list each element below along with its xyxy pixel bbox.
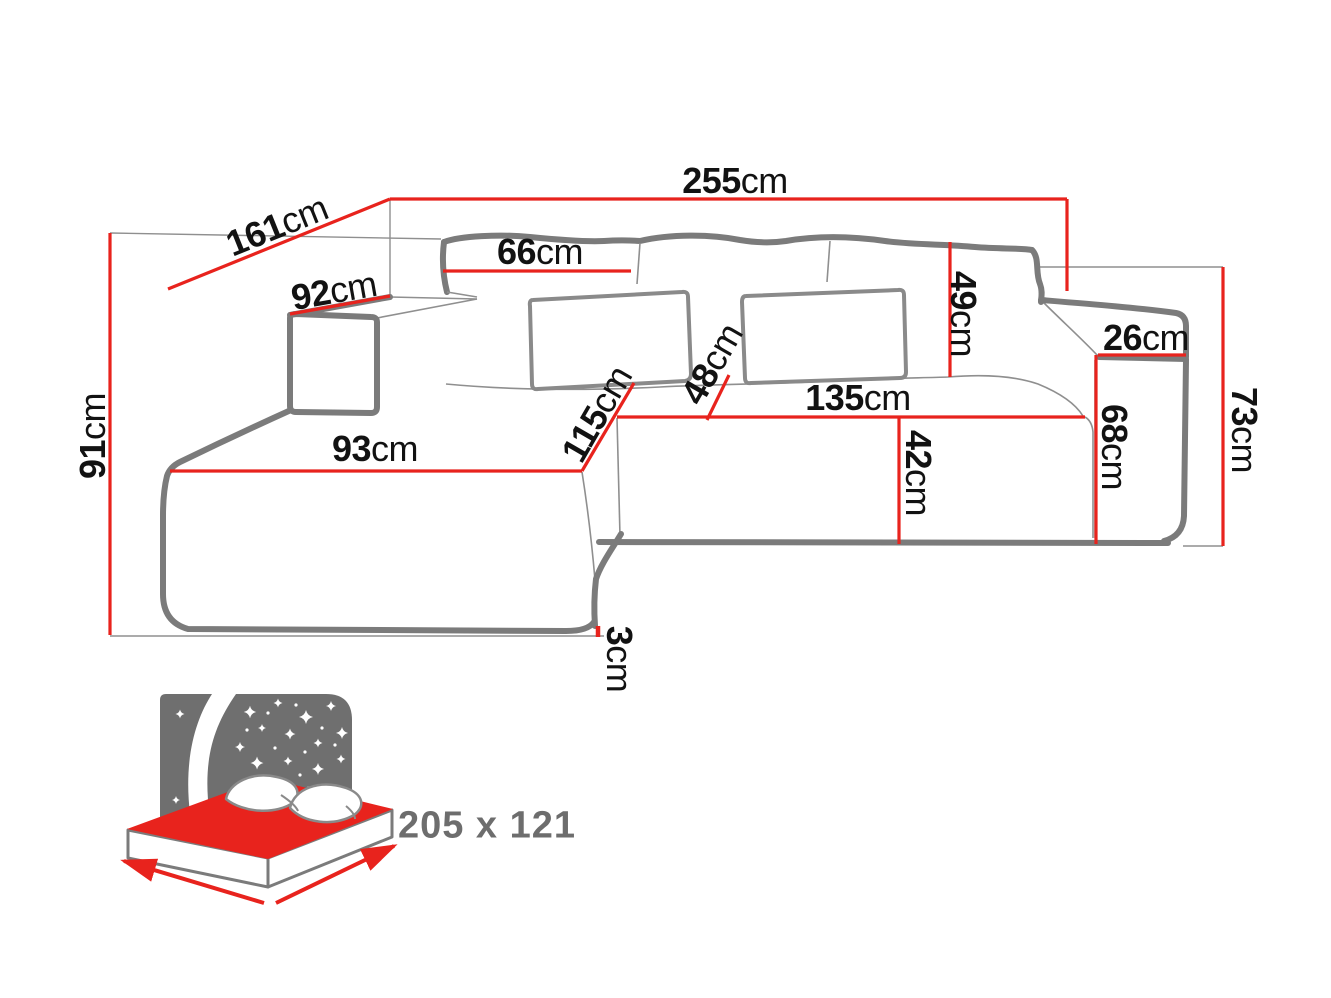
sleeping-function-icon [124,694,394,903]
diagram-canvas [0,0,1331,998]
dim-label-right-side-height: 73cm [1226,387,1262,473]
dim-label-right-armrest-top-width: 26cm [1103,320,1189,356]
dim-label-seat-front-height: 42cm [900,430,936,516]
dim-label-feet-height: 3cm [601,626,637,693]
dim-label-chaise-front-width: 93cm [332,431,418,467]
dim-label-back-pillow-height: 49cm [945,271,981,357]
dim-label-seat-width: 135cm [805,380,911,416]
sofa-dimension-diagram: 255cm 161cm 92cm 66cm 49cm 26cm 73cm 68c… [0,0,1331,998]
dim-label-overall-width: 255cm [682,163,788,199]
dim-label-left-height: 91cm [75,393,111,479]
dim-label-back-cushion-width: 66cm [497,234,583,270]
sleeping-size-label: 205 x 121 [398,805,576,848]
dim-label-right-armrest-front-height: 68cm [1096,404,1132,490]
